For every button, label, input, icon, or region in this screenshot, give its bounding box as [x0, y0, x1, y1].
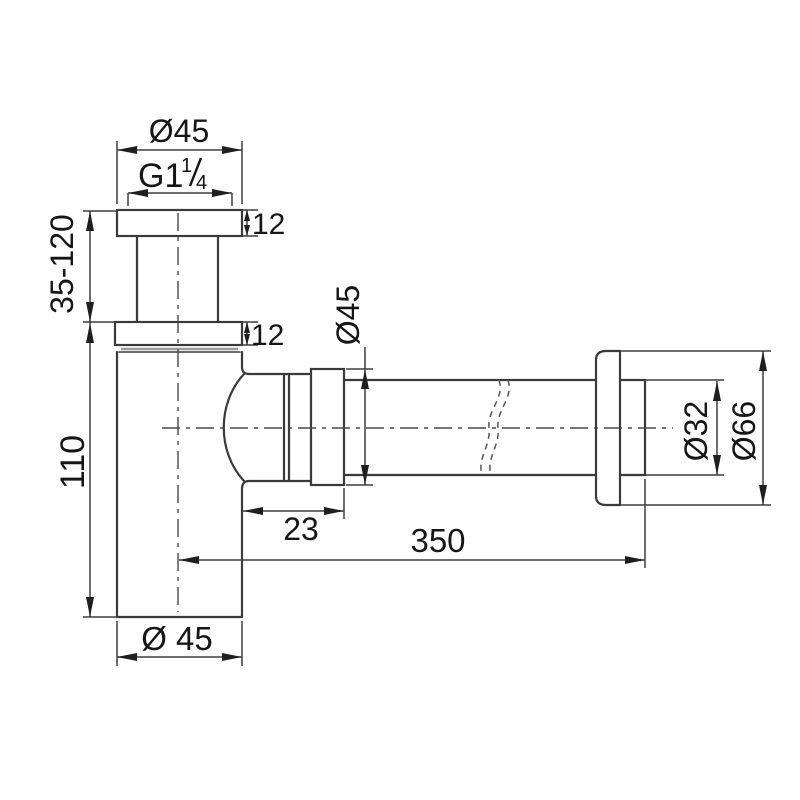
dim-body-diameter: Ø 45 — [117, 620, 242, 666]
arrowhead — [244, 334, 250, 345]
inlet-adjust-range-label: 35-120 — [44, 214, 80, 314]
arrowhead — [759, 485, 767, 505]
arrowhead — [179, 556, 199, 564]
arrowhead — [222, 653, 242, 661]
outlet-offset-label: 23 — [283, 511, 319, 547]
dim-pipe-length: 350 — [179, 479, 645, 568]
part-outlines — [115, 210, 645, 617]
arrowhead — [117, 146, 137, 154]
arrowhead — [324, 507, 344, 515]
arrowhead — [243, 507, 263, 515]
thread-size-label: G1 — [138, 157, 183, 195]
pipe-diameter-label: Ø32 — [678, 401, 714, 461]
arrowhead — [86, 302, 94, 322]
arrowhead — [244, 225, 250, 236]
top-flange-thickness-label: 12 — [252, 208, 285, 241]
body-height-label: 110 — [54, 435, 92, 489]
dim-thread-size: G1 1 4 — [128, 155, 232, 206]
dim-top-flange-thickness: 12 — [243, 208, 285, 241]
dim-lower-flange-thickness: 12 — [243, 319, 284, 352]
top-flange-diameter-label: Ø45 — [149, 113, 209, 149]
arrowhead — [117, 653, 137, 661]
arrowhead — [222, 146, 242, 154]
dim-pipe-diameter: Ø32 — [645, 380, 724, 475]
arrowhead — [244, 322, 250, 333]
outlet-nut-outline — [311, 369, 344, 485]
arrowhead — [86, 211, 94, 231]
arrowhead — [625, 556, 645, 564]
thread-fraction-numerator: 1 — [181, 155, 192, 177]
dim-outlet-offset: 23 — [243, 488, 344, 547]
bottle-trap-technical-drawing: Ø45 G1 1 4 12 12 35-120 110 — [0, 0, 800, 800]
dim-outlet-nut-diameter: Ø45 — [330, 285, 373, 485]
arrowhead — [244, 210, 250, 221]
arrowhead — [212, 189, 232, 197]
lower-flange-thickness-label: 12 — [251, 319, 284, 352]
body-diameter-label: Ø 45 — [141, 620, 213, 657]
drawing-canvas: Ø45 G1 1 4 12 12 35-120 110 — [0, 0, 800, 800]
pipe-length-label: 350 — [410, 522, 465, 559]
top-flange-outline — [117, 210, 242, 236]
outlet-nut-diameter-label: Ø45 — [330, 285, 366, 345]
dim-body-height: 110 — [54, 322, 117, 617]
dim-inlet-adjust-range: 35-120 — [44, 211, 117, 322]
trap-body-outline — [117, 352, 249, 617]
arrowhead — [86, 323, 94, 343]
arrowhead — [713, 455, 721, 475]
thread-fraction-denominator: 4 — [196, 172, 207, 194]
arrowhead — [86, 597, 94, 617]
arrowhead — [759, 351, 767, 371]
wall-flange-diameter-label: Ø66 — [726, 401, 762, 461]
arrowhead — [713, 381, 721, 401]
